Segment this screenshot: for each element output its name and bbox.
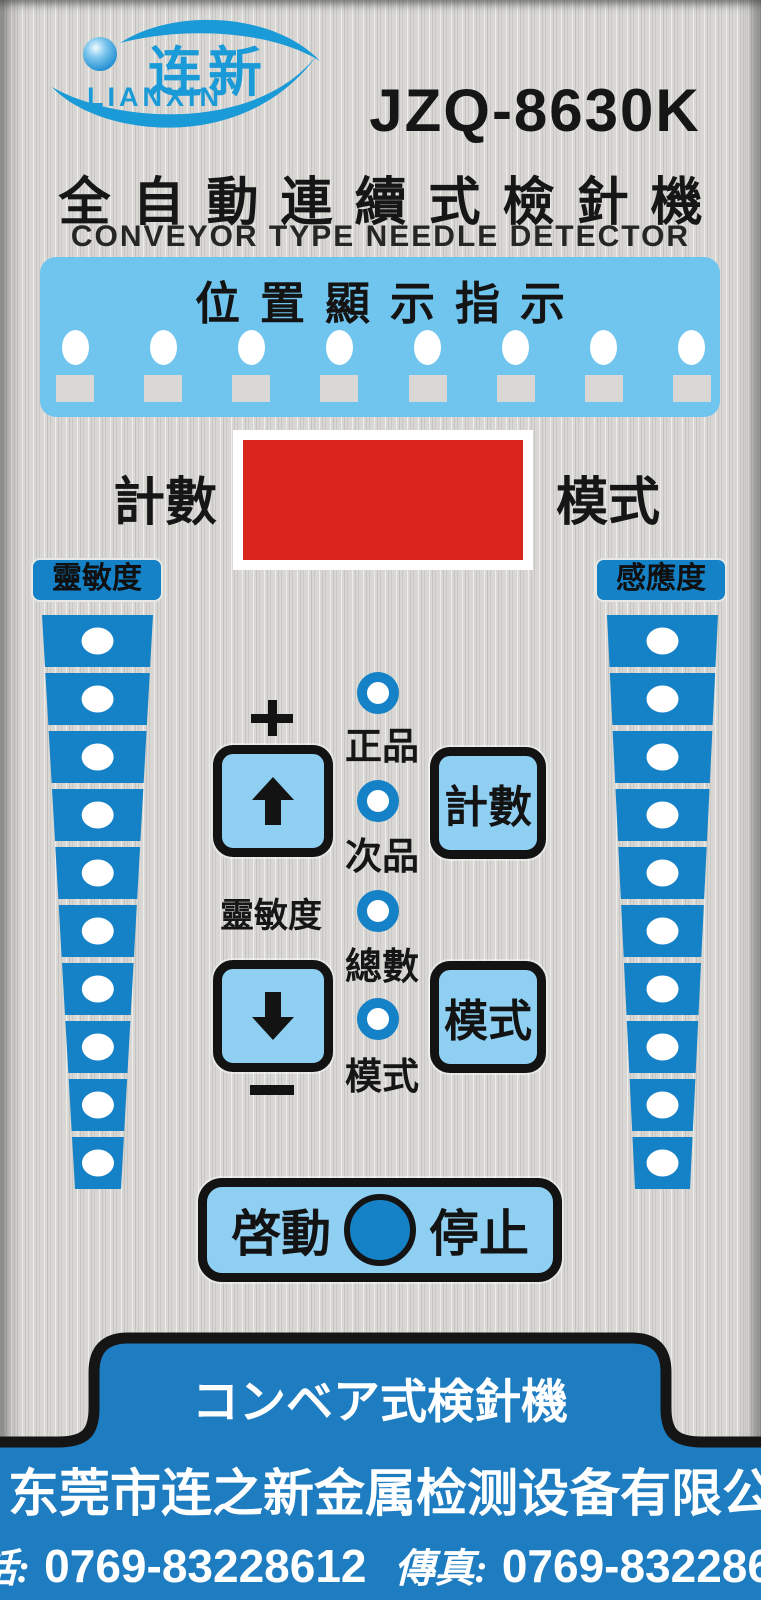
logo-latin: LIANXIN — [60, 82, 250, 113]
mode-button[interactable]: 模式 — [430, 961, 546, 1073]
mode-label: 模式 — [543, 460, 673, 535]
wedge-right — [607, 615, 718, 1189]
wedge-segment — [65, 1021, 130, 1073]
wedge-left — [42, 615, 153, 1189]
wedge-segment — [624, 963, 701, 1015]
contact-line: 電話: 0769-83228612 傳真: 0769-83228650 — [20, 1536, 741, 1594]
wedge-segment — [621, 905, 704, 957]
wedge-segment — [632, 1137, 692, 1189]
display-red-window — [243, 440, 523, 560]
wedge-segment — [613, 731, 713, 783]
position-led — [590, 330, 617, 365]
count-button[interactable]: 計數 — [430, 747, 546, 859]
seven-segment-display — [233, 430, 533, 570]
wedge-segment — [607, 615, 718, 667]
wedge-segment — [630, 1079, 696, 1131]
wedge-dot — [82, 1034, 114, 1061]
wedge-segment — [610, 673, 715, 725]
wedge-dot — [82, 802, 114, 829]
wedge-segment — [618, 847, 706, 899]
wedge-dot — [82, 860, 114, 887]
up-arrow-icon — [250, 775, 296, 827]
phone-label: 電話: — [0, 1536, 30, 1594]
fax-number: 0769-83228650 — [502, 1539, 761, 1593]
led-total-label: 總數 — [327, 936, 437, 990]
position-led — [414, 330, 441, 365]
position-slot — [56, 375, 94, 402]
position-slot — [320, 375, 358, 402]
wedge-dot — [82, 686, 114, 713]
position-slot — [409, 375, 447, 402]
wedge-dot — [647, 1092, 679, 1119]
machine-title-english: CONVEYOR TYPE NEEDLE DETECTOR — [0, 220, 761, 254]
down-arrow-icon — [250, 990, 296, 1042]
logo-drop-icon — [83, 37, 117, 71]
wedge-segment — [42, 615, 153, 667]
position-slot — [497, 375, 535, 402]
sensitivity-center-label: 靈敏度 — [206, 888, 336, 937]
wedge-dot — [82, 918, 114, 945]
position-led — [326, 330, 353, 365]
company-name: 东莞市连之新金属检测设备有限公司 — [8, 1452, 753, 1526]
position-led — [502, 330, 529, 365]
control-panel: 连新 LIANXIN JZQ-8630K 全自動連續式檢針機 CONVEYOR … — [0, 0, 761, 1600]
plus-icon — [251, 700, 293, 736]
wedge-dot — [647, 628, 679, 655]
led-mode-label: 模式 — [327, 1046, 437, 1100]
position-led — [150, 330, 177, 365]
wedge-dot — [647, 1150, 679, 1177]
wedge-segment — [69, 1079, 127, 1131]
wedge-dot — [647, 918, 679, 945]
wedge-dot — [647, 802, 679, 829]
position-slot — [585, 375, 623, 402]
start-stop-button[interactable]: 啓動 停止 — [198, 1178, 562, 1282]
wedge-segment — [45, 673, 149, 725]
position-led — [62, 330, 89, 365]
led-good — [357, 672, 399, 714]
wedge-segment — [52, 789, 143, 841]
position-indicator-panel: 位置顯示指示 — [40, 257, 720, 417]
wedge-dot — [82, 744, 114, 771]
wedge-dot — [647, 744, 679, 771]
down-button[interactable] — [213, 960, 333, 1072]
led-good-label: 正品 — [327, 716, 437, 770]
position-panel-title: 位置顯示指示 — [40, 267, 720, 332]
wedge-segment — [62, 963, 134, 1015]
wedge-dot — [647, 1034, 679, 1061]
sensitivity-left-header: 靈敏度 — [31, 558, 163, 602]
mode-button-label: 模式 — [444, 985, 532, 1049]
counter-label: 計數 — [95, 460, 235, 535]
phone-number: 0769-83228612 — [44, 1539, 366, 1593]
position-slot — [673, 375, 711, 402]
wedge-dot — [82, 976, 114, 1003]
wedge-segment — [72, 1137, 124, 1189]
fax-label: 傳真: — [395, 1536, 488, 1594]
position-slot — [144, 375, 182, 402]
wedge-dot — [82, 1092, 114, 1119]
wedge-segment — [49, 731, 147, 783]
position-led — [678, 330, 705, 365]
wedge-dot — [82, 628, 114, 655]
model-number: JZQ-8630K — [350, 76, 720, 145]
led-defect-label: 次品 — [327, 826, 437, 880]
wedge-segment — [615, 789, 709, 841]
wedge-dot — [647, 976, 679, 1003]
footer-tab-title: コンベア式検針機 — [100, 1363, 660, 1432]
position-led — [238, 330, 265, 365]
wedge-segment — [55, 847, 140, 899]
wedge-dot — [647, 860, 679, 887]
start-label: 啓動 — [231, 1194, 331, 1266]
wedge-segment — [627, 1021, 698, 1073]
minus-icon — [250, 1085, 294, 1095]
led-defect — [357, 780, 399, 822]
up-button[interactable] — [213, 745, 333, 857]
sensitivity-right-header: 感應度 — [595, 558, 727, 602]
led-total — [357, 890, 399, 932]
start-stop-circle-icon[interactable] — [344, 1194, 416, 1266]
wedge-segment — [59, 905, 137, 957]
wedge-dot — [647, 686, 679, 713]
stop-label: 停止 — [429, 1194, 529, 1266]
wedge-dot — [82, 1150, 114, 1177]
position-slot — [232, 375, 270, 402]
led-mode — [357, 998, 399, 1040]
count-button-label: 計數 — [444, 771, 532, 835]
